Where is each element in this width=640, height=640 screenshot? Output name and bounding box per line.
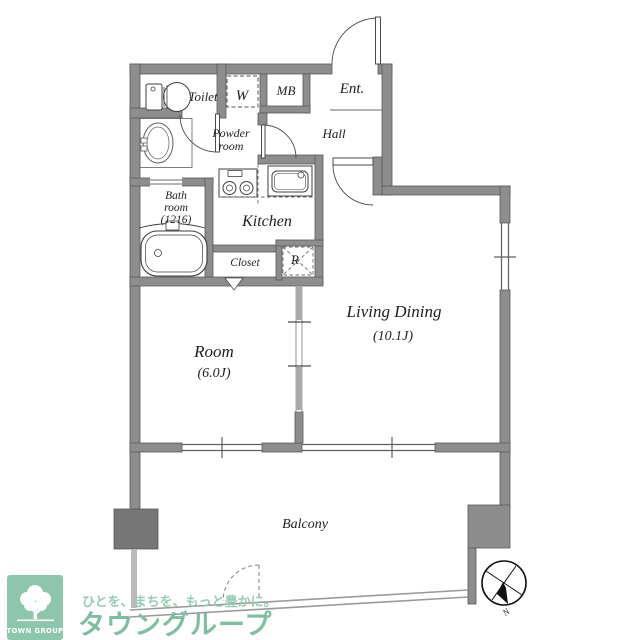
label-room-size: (6.0J) <box>197 366 230 381</box>
bathtub-icon <box>139 221 207 276</box>
label-w-closet: W <box>236 88 250 104</box>
wall-living-north <box>382 186 510 195</box>
pillar-bottom-left <box>114 509 158 549</box>
wall-stub-below-mb <box>258 113 267 125</box>
label-closet: Closet <box>230 257 260 269</box>
label-balcony: Balcony <box>282 517 329 532</box>
powder-door-leaf <box>262 125 266 158</box>
wall-right-seg1 <box>500 186 510 223</box>
wall-partition-stub <box>295 412 303 443</box>
wall-top-left <box>130 64 332 74</box>
label-hall: Hall <box>321 126 346 141</box>
wall-step-block-right <box>468 505 510 548</box>
kitchen-sink-icon <box>268 166 312 196</box>
wall-left <box>130 64 140 509</box>
compass-icon: N <box>482 561 526 618</box>
powder-door-arc <box>263 125 296 158</box>
label-refrigerator: R <box>290 252 299 267</box>
logo-brand: タウングループ <box>78 609 272 640</box>
toilet-icon <box>146 83 191 112</box>
bath-door-gap <box>150 177 182 187</box>
wall-hall-step <box>373 157 382 195</box>
entrance-door-leaf <box>376 17 381 64</box>
label-powder-2: room <box>219 139 244 153</box>
label-powder-1: Powder <box>211 126 250 140</box>
floorplan-image: { "floorplan": { "rooms": { "toilet": "T… <box>0 0 640 640</box>
wall-right-seg2 <box>500 290 510 507</box>
wall-kitchen-north <box>258 155 317 164</box>
entrance-door-arc <box>332 18 378 64</box>
label-room: Room <box>193 342 234 361</box>
wall-bottom-seg3 <box>435 443 510 452</box>
floorplan-svg: N Toilet W MB Ent. Powder room Hall Bath… <box>0 0 640 640</box>
logo-tagline: ひとを、まちを、もっと豊かに。 <box>82 594 277 610</box>
washbasin-icon <box>140 119 192 168</box>
town-group-logo: TOWN GROUP ひとを、まちを、もっと豊かに。 タウングループ <box>6 575 276 640</box>
stove-icon <box>219 169 257 197</box>
label-living-dining: Living Dining <box>346 302 442 321</box>
hall-door-arc <box>333 165 373 205</box>
compass-north-label: N <box>500 606 512 619</box>
wall-right-upper <box>382 64 392 195</box>
wall-kitchen-living <box>315 155 323 285</box>
wall-bath-right <box>205 178 213 285</box>
wall-bottom-seg2 <box>262 443 302 452</box>
label-toilet: Toilet <box>188 89 218 104</box>
wall-closet-top <box>213 245 280 252</box>
label-bath-2: room <box>164 202 188 214</box>
hall-door-leaf <box>333 158 373 165</box>
sliding-partition <box>288 286 311 412</box>
wall-mb-bottom <box>260 106 310 113</box>
logo-box-label: TOWN GROUP <box>6 627 63 635</box>
label-living-dining-size: (10.1J) <box>373 329 413 344</box>
wall-bottom-seg1 <box>130 443 182 452</box>
wall-post-right-low <box>468 548 476 604</box>
label-entrance: Ent. <box>339 81 365 97</box>
label-bath-3: (1216) <box>161 214 192 226</box>
wall-toilet-right <box>217 64 226 118</box>
label-mb: MB <box>276 83 296 98</box>
label-bath-1: Bath <box>165 190 187 202</box>
wall-fridge-top <box>276 240 323 246</box>
label-kitchen: Kitchen <box>241 213 292 230</box>
